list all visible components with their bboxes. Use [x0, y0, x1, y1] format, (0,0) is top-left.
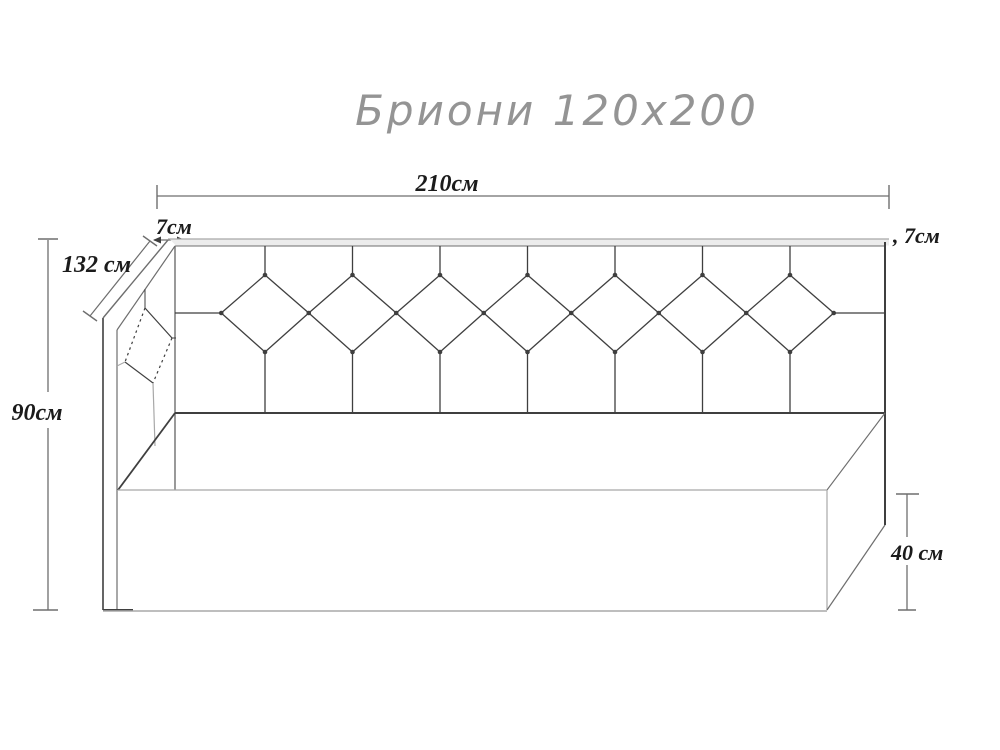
dim-base-height-label: 40 см [890, 540, 943, 565]
dimension-base-height: 40 см [890, 494, 943, 610]
bed-diagram: 210см 7см , 7см 132 см 90см [0, 0, 1000, 750]
dim-side-depth-label: 132 см [62, 252, 131, 278]
dim-rail-right-label: , 7см [892, 223, 940, 248]
dim-rail-left-label: 7см [156, 214, 192, 239]
tufting-pattern [175, 246, 885, 413]
dimension-top-width: 210см [157, 171, 889, 209]
dim-top-width-label: 210см [414, 171, 478, 197]
dimension-height: 90см [11, 239, 62, 610]
headboard [168, 239, 889, 525]
base-box [103, 413, 885, 611]
dimension-rail-right: , 7см [892, 223, 940, 248]
dimension-side-depth: 132 см [62, 236, 157, 321]
dim-height-label: 90см [11, 400, 62, 426]
drawing-canvas: Бриони 120x200 210см 7см , 7см 132 см [0, 0, 1000, 750]
